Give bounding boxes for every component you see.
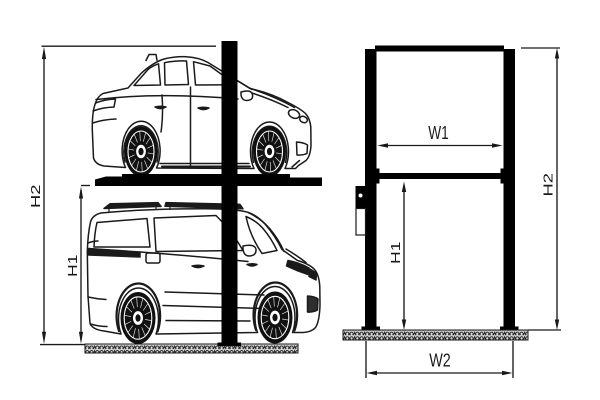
- svg-text:H2: H2: [28, 184, 43, 208]
- svg-text:H2: H2: [541, 173, 556, 197]
- svg-text:H1: H1: [65, 254, 80, 277]
- svg-text:H1: H1: [388, 241, 403, 264]
- svg-text:W1: W1: [428, 122, 449, 143]
- svg-text:W2: W2: [429, 350, 451, 371]
